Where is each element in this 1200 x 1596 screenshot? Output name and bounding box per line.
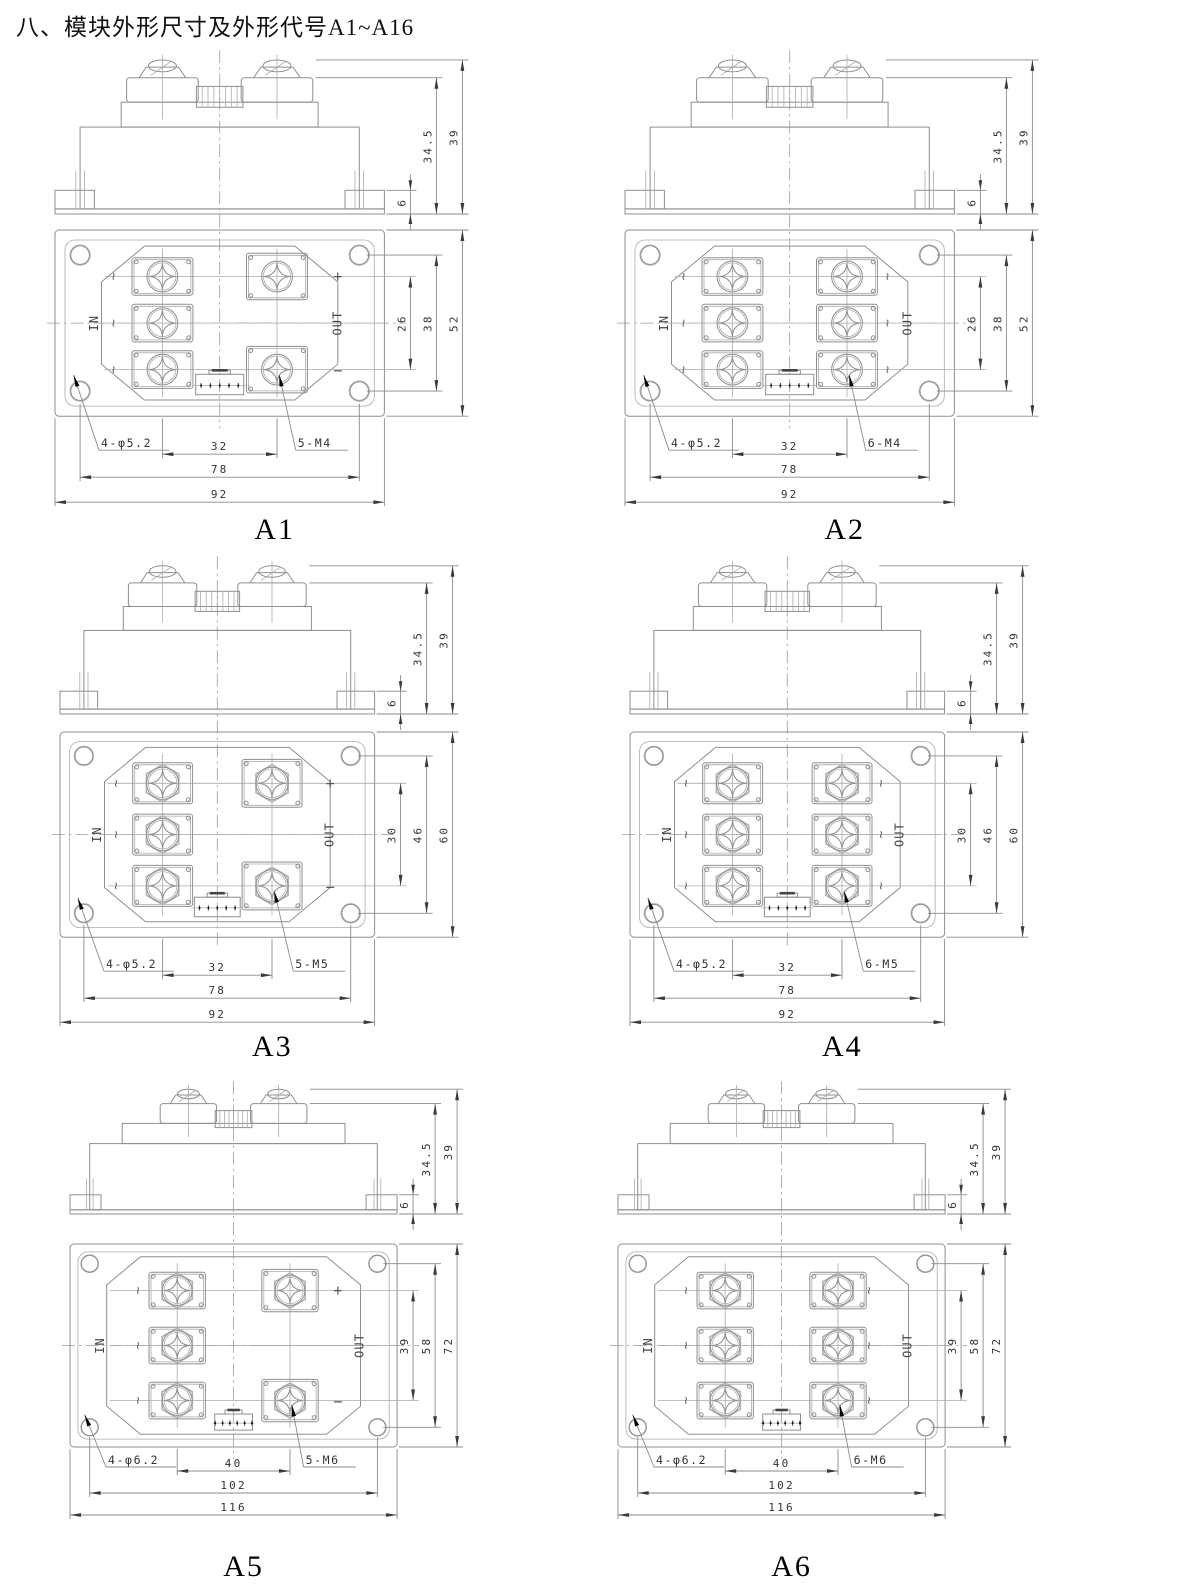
dim-text: 46 xyxy=(412,826,425,844)
dim-text: 52 xyxy=(1017,314,1030,332)
screws-label: 6-M4 xyxy=(868,436,902,450)
minus-mark: − xyxy=(333,1393,342,1411)
module-label: A3 xyxy=(252,1030,293,1060)
ac-mark: ~ xyxy=(109,882,124,890)
ac-mark: ~ xyxy=(131,1396,146,1404)
ac-mark: ~ xyxy=(131,1341,146,1349)
dim-text: 34.5 xyxy=(991,128,1004,163)
dim-text: 60 xyxy=(1008,826,1021,844)
dim-text: 58 xyxy=(420,1337,433,1355)
dim-text: 38 xyxy=(991,314,1004,332)
dim-text: 30 xyxy=(956,826,969,844)
ac-mark: ~ xyxy=(874,779,889,787)
module-drawing-a3: 634.539~~~+−INOUT3046603278924-φ5.25-M5A… xyxy=(36,552,616,1060)
dim-text: 32 xyxy=(208,961,226,974)
plan-view: ~~~~~~INOUT xyxy=(622,556,977,949)
minus-mark: − xyxy=(333,362,342,380)
ac-mark: ~ xyxy=(679,1286,694,1294)
dim-text: 39 xyxy=(442,1143,455,1161)
plan-view: ~~~~~~INOUT xyxy=(610,1081,967,1459)
holes-label: 4-φ6.2 xyxy=(656,1453,707,1467)
dim-text: 92 xyxy=(778,1008,796,1021)
dim-text: 6 xyxy=(386,698,399,707)
dim-text: 30 xyxy=(386,826,399,844)
side-view: 634.539 xyxy=(625,55,1038,230)
dim-text: 39 xyxy=(946,1337,959,1355)
ac-mark: ~ xyxy=(107,366,122,374)
side-view: 634.539 xyxy=(70,1085,463,1230)
dim-text: 6 xyxy=(965,198,978,207)
out-label: OUT xyxy=(323,822,337,847)
dim-text: 92 xyxy=(781,488,799,501)
dim-text: 102 xyxy=(220,1479,246,1492)
dim-text: 34.5 xyxy=(982,631,995,666)
side-view: 634.539 xyxy=(55,55,468,230)
ac-mark: ~ xyxy=(679,831,694,839)
dim-text: 39 xyxy=(438,631,451,649)
in-label: IN xyxy=(641,1337,655,1353)
in-label: IN xyxy=(93,1337,107,1353)
holes-label: 4-φ5.2 xyxy=(671,436,722,450)
ac-mark: ~ xyxy=(107,272,122,280)
ac-mark: ~ xyxy=(679,1341,694,1349)
out-label: OUT xyxy=(900,311,914,336)
ac-mark: ~ xyxy=(131,1286,146,1294)
holes-label: 4-φ5.2 xyxy=(676,957,727,971)
module-label: A4 xyxy=(822,1030,863,1060)
module-cell-a3: 634.539~~~+−INOUT3046603278924-φ5.25-M5A… xyxy=(36,552,616,1060)
dim-text: 78 xyxy=(778,984,796,997)
module-drawing-a5: 634.539~~~+−INOUT395872401021164-φ6.25-M… xyxy=(36,1062,616,1594)
dim-text: 116 xyxy=(220,1501,246,1514)
plan-view: ~~~+−INOUT xyxy=(52,556,407,949)
dim-text: 32 xyxy=(778,961,796,974)
dim-text: 52 xyxy=(447,314,460,332)
dim-text: 60 xyxy=(438,826,451,844)
dim-text: 26 xyxy=(395,314,408,332)
out-label: OUT xyxy=(330,311,344,336)
ac-mark: ~ xyxy=(874,882,889,890)
ac-mark: ~ xyxy=(862,1286,877,1294)
module-drawing-a2: 634.539~~~~~~INOUT2638523278924-φ5.26-M4… xyxy=(606,42,1186,550)
dim-text: 26 xyxy=(965,314,978,332)
ac-mark: ~ xyxy=(107,319,122,327)
in-label: IN xyxy=(87,315,101,331)
screws-label: 6-M5 xyxy=(865,957,899,971)
dim-text: 102 xyxy=(768,1479,794,1492)
side-view: 634.539 xyxy=(60,561,459,730)
leader-labels: 4-φ5.26-M5 xyxy=(648,891,916,972)
dim-text: 78 xyxy=(211,463,229,476)
module-label: A6 xyxy=(771,1550,812,1583)
ac-mark: ~ xyxy=(862,1341,877,1349)
dim-text: 6 xyxy=(398,1200,411,1209)
dim-text: 39 xyxy=(1017,128,1030,146)
dim-text: 78 xyxy=(781,463,799,476)
ac-mark: ~ xyxy=(679,882,694,890)
in-label: IN xyxy=(660,826,674,842)
dim-text: 92 xyxy=(211,488,229,501)
ac-mark: ~ xyxy=(109,779,124,787)
holes-label: 4-φ5.2 xyxy=(106,957,157,971)
ac-mark: ~ xyxy=(881,366,896,374)
ac-mark: ~ xyxy=(862,1396,877,1404)
dim-text: 6 xyxy=(956,698,969,707)
screws-label: 6-M6 xyxy=(854,1453,888,1467)
ac-mark: ~ xyxy=(679,1396,694,1404)
module-label: A2 xyxy=(824,513,865,546)
ac-mark: ~ xyxy=(677,272,692,280)
dim-text: 39 xyxy=(990,1143,1003,1161)
dim-text: 40 xyxy=(773,1457,791,1470)
dim-text: 34.5 xyxy=(421,128,434,163)
ac-mark: ~ xyxy=(677,366,692,374)
dim-text: 34.5 xyxy=(968,1141,981,1176)
module-cell-a5: 634.539~~~+−INOUT395872401021164-φ6.25-M… xyxy=(36,1062,616,1594)
page-title: 八、模块外形尺寸及外形代号A1~A16 xyxy=(16,8,414,42)
dim-text: 39 xyxy=(447,128,460,146)
out-label: OUT xyxy=(900,1333,914,1358)
dim-text: 32 xyxy=(211,440,229,453)
screws-label: 5-M6 xyxy=(306,1453,340,1467)
dim-text: 6 xyxy=(395,198,408,207)
module-drawing-a1: 634.539~~~+−INOUT2638523278924-φ5.25-M4A… xyxy=(36,42,616,550)
module-label: A1 xyxy=(254,513,295,546)
ac-mark: ~ xyxy=(679,779,694,787)
dim-text: 32 xyxy=(781,440,799,453)
plus-mark: + xyxy=(333,268,342,286)
dim-text: 34.5 xyxy=(412,631,425,666)
ac-mark: ~ xyxy=(881,272,896,280)
ac-mark: ~ xyxy=(881,319,896,327)
holes-label: 4-φ6.2 xyxy=(108,1453,159,1467)
screws-label: 5-M5 xyxy=(295,957,329,971)
ac-mark: ~ xyxy=(874,831,889,839)
minus-mark: − xyxy=(326,878,335,896)
out-label: OUT xyxy=(893,822,907,847)
module-drawing-a6: 634.539~~~~~~INOUT395872401021164-φ6.26-… xyxy=(584,1062,1164,1594)
dim-text: 34.5 xyxy=(420,1141,433,1176)
dim-text: 116 xyxy=(768,1501,794,1514)
module-cell-a1: 634.539~~~+−INOUT2638523278924-φ5.25-M4A… xyxy=(36,42,616,550)
ac-mark: ~ xyxy=(109,831,124,839)
dim-text: 40 xyxy=(225,1457,243,1470)
side-view: 634.539 xyxy=(618,1085,1011,1230)
dim-text: 39 xyxy=(1008,631,1021,649)
plan-dimensions: 39587240102116 xyxy=(618,1244,1011,1519)
module-drawing-a4: 634.539~~~~~~INOUT3046603278924-φ5.26-M5… xyxy=(606,552,1186,1060)
module-cell-a4: 634.539~~~~~~INOUT3046603278924-φ5.26-M5… xyxy=(606,552,1186,1060)
module-cell-a2: 634.539~~~~~~INOUT2638523278924-φ5.26-M4… xyxy=(606,42,1186,550)
datasheet-page: 八、模块外形尺寸及外形代号A1~A16 634.539~~~+−INOUT263… xyxy=(0,0,1200,1596)
dim-text: 38 xyxy=(421,314,434,332)
in-label: IN xyxy=(90,826,104,842)
dim-text: 39 xyxy=(398,1337,411,1355)
module-cell-a6: 634.539~~~~~~INOUT395872401021164-φ6.26-… xyxy=(584,1062,1164,1594)
dim-text: 72 xyxy=(990,1337,1003,1355)
leader-labels: 4-φ5.25-M5 xyxy=(78,891,346,972)
in-label: IN xyxy=(657,315,671,331)
plus-mark: + xyxy=(326,774,335,792)
ac-mark: ~ xyxy=(677,319,692,327)
plus-mark: + xyxy=(333,1282,342,1300)
holes-label: 4-φ5.2 xyxy=(101,436,152,450)
dim-text: 46 xyxy=(982,826,995,844)
dim-text: 92 xyxy=(208,1008,226,1021)
dim-text: 6 xyxy=(946,1200,959,1209)
dim-text: 58 xyxy=(968,1337,981,1355)
dim-text: 72 xyxy=(442,1337,455,1355)
out-label: OUT xyxy=(352,1333,366,1358)
side-view: 634.539 xyxy=(630,561,1029,730)
plan-view: ~~~+−INOUT xyxy=(62,1081,419,1459)
dim-text: 78 xyxy=(208,984,226,997)
screws-label: 5-M4 xyxy=(298,436,332,450)
module-label: A5 xyxy=(223,1550,264,1583)
